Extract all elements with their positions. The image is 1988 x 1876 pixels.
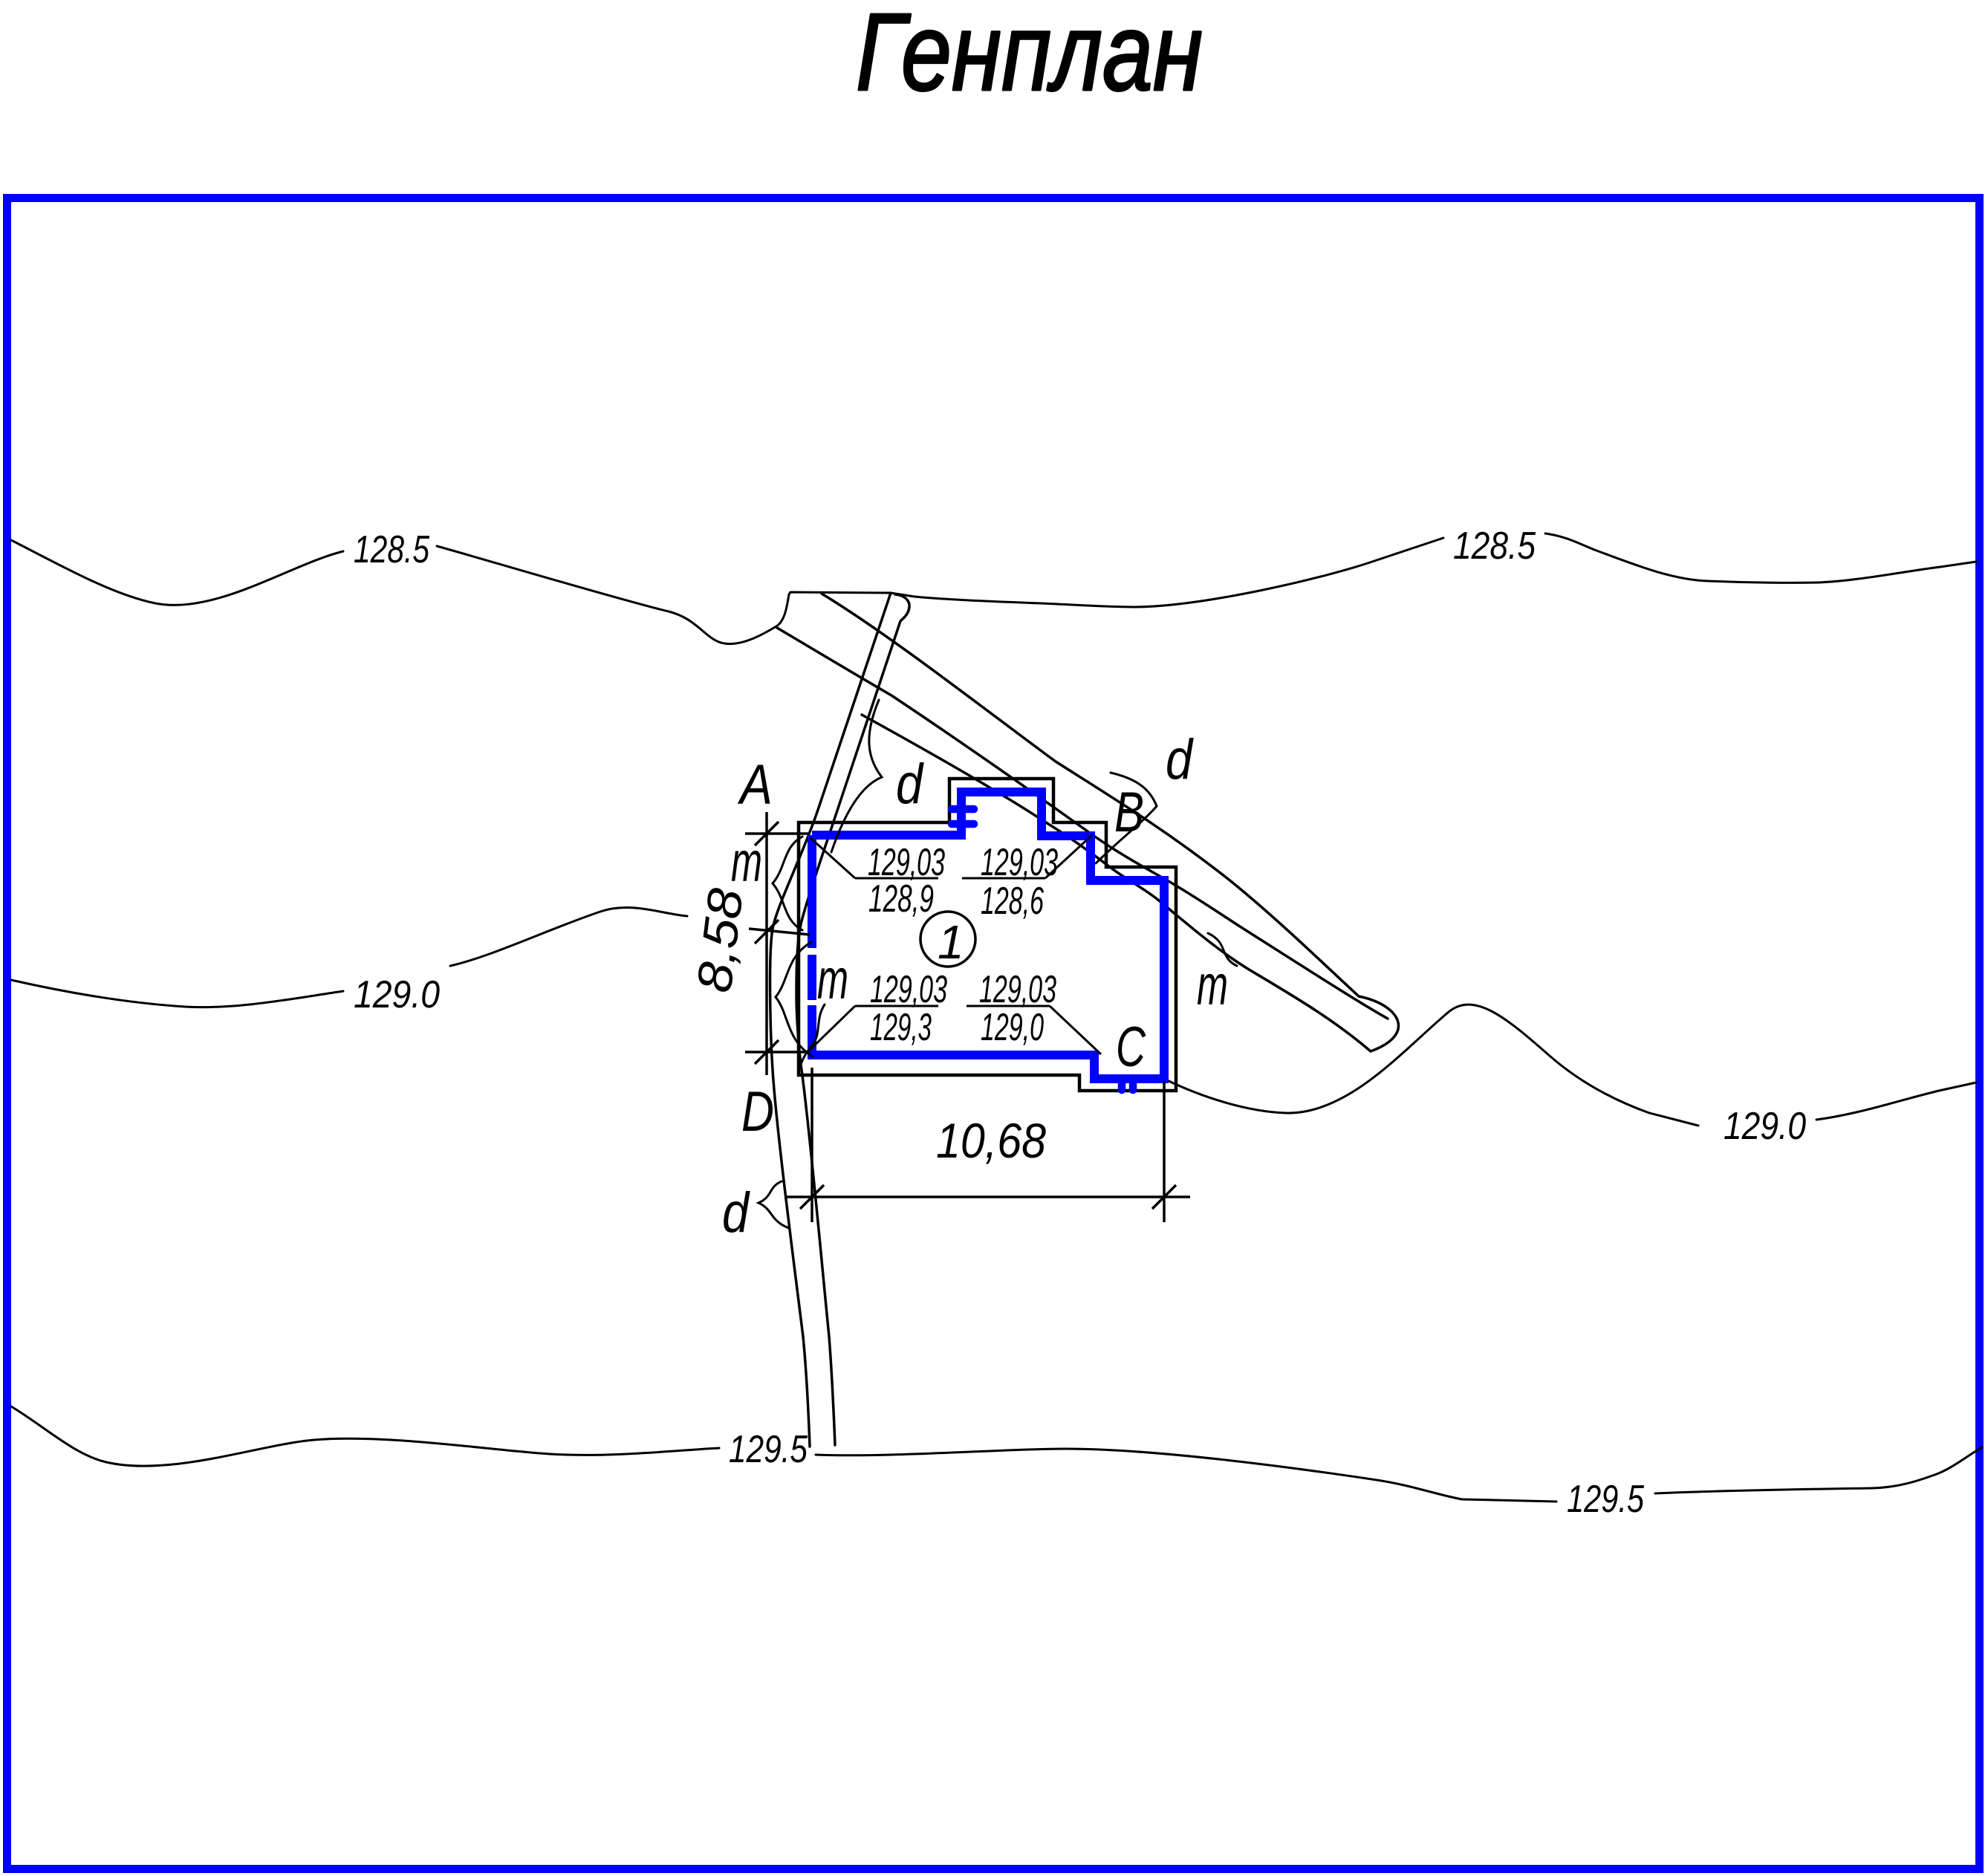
svg-text:128,9: 128,9 xyxy=(868,877,934,921)
svg-text:129.0: 129.0 xyxy=(1724,1105,1806,1148)
svg-text:10,68: 10,68 xyxy=(936,1113,1046,1168)
svg-text:128.5: 128.5 xyxy=(1453,525,1536,568)
svg-text:129,3: 129,3 xyxy=(870,1006,932,1049)
svg-text:129,03: 129,03 xyxy=(981,841,1058,884)
svg-text:m: m xyxy=(817,948,848,1011)
svg-text:129,0: 129,0 xyxy=(981,1006,1044,1049)
svg-text:129.0: 129.0 xyxy=(354,973,440,1016)
svg-text:1: 1 xyxy=(938,915,964,969)
svg-text:C: C xyxy=(1116,1016,1146,1079)
svg-text:m: m xyxy=(1197,954,1228,1017)
svg-text:d: d xyxy=(896,753,924,816)
svg-text:D: D xyxy=(741,1080,774,1143)
svg-text:d: d xyxy=(1166,728,1194,791)
svg-text:A: A xyxy=(738,753,773,817)
svg-text:129.5: 129.5 xyxy=(1567,1478,1645,1521)
svg-text:129,03: 129,03 xyxy=(870,968,947,1011)
svg-text:Генплан: Генплан xyxy=(856,0,1203,114)
svg-text:129.5: 129.5 xyxy=(729,1428,808,1471)
svg-text:128,6: 128,6 xyxy=(981,880,1044,923)
svg-text:128.5: 128.5 xyxy=(354,528,430,571)
svg-text:B: B xyxy=(1114,781,1144,844)
svg-text:129,03: 129,03 xyxy=(979,968,1056,1011)
svg-text:m: m xyxy=(731,831,762,894)
svg-text:d: d xyxy=(722,1181,750,1244)
